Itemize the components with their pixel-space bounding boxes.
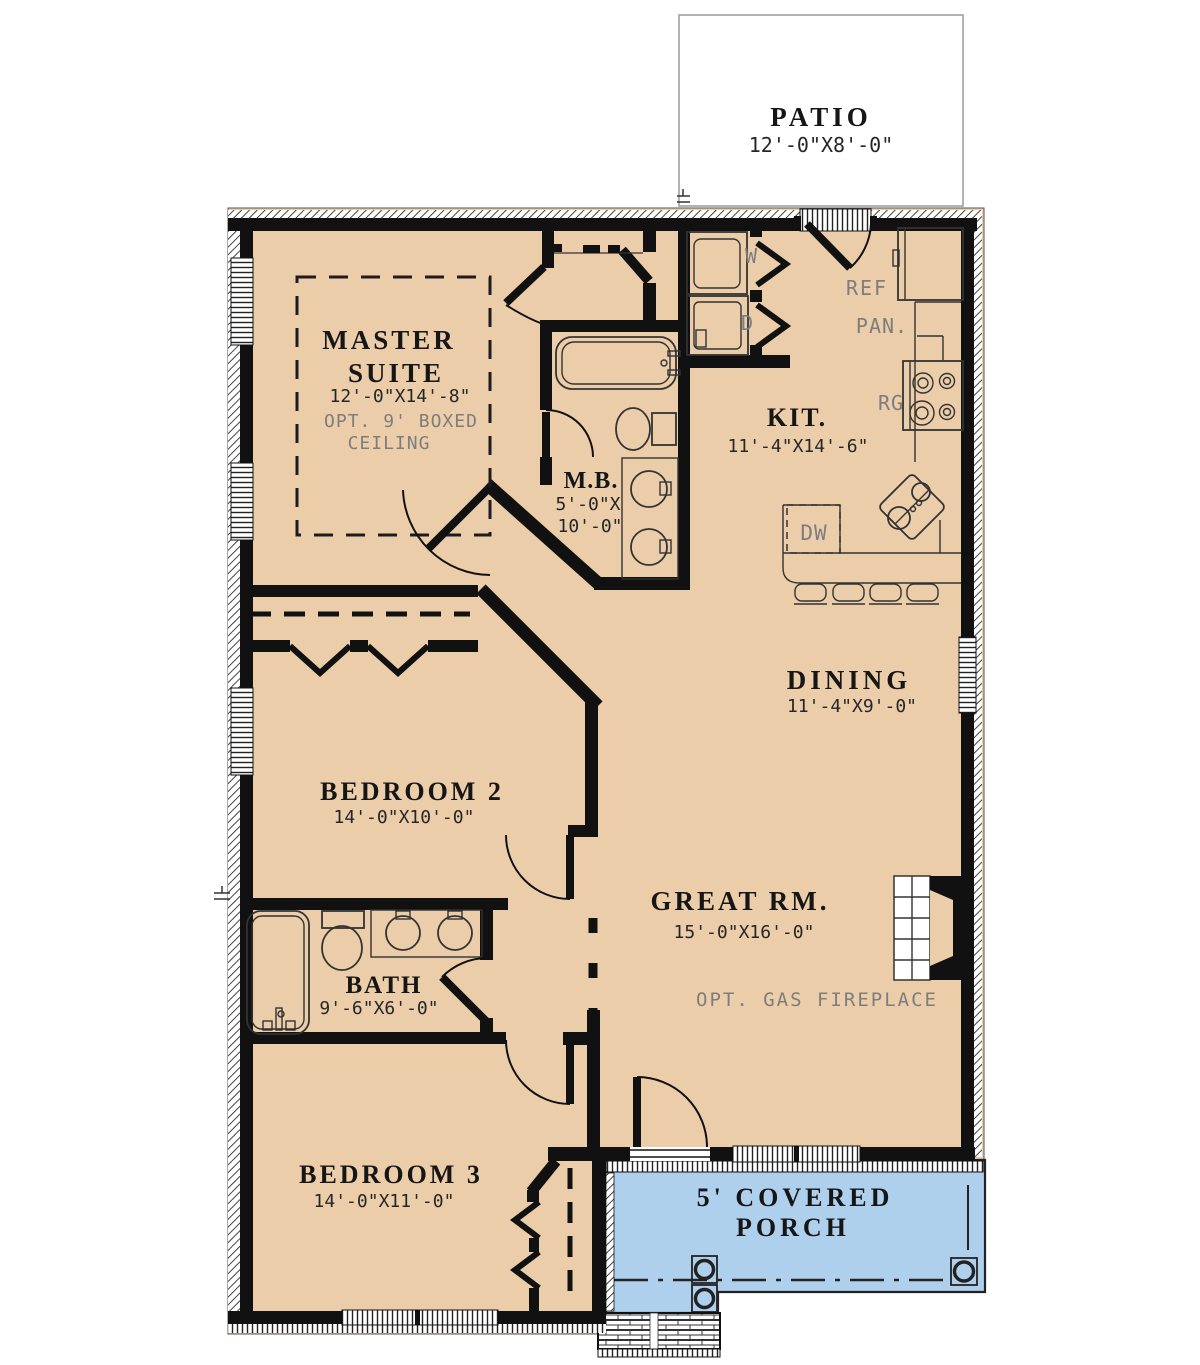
master-bath-dims-1: 5'-0"X — [555, 494, 620, 515]
porch-label-line1: 5' COVERED — [697, 1183, 894, 1212]
range-label: RG — [878, 391, 904, 415]
bath-label: BATH — [346, 972, 423, 999]
porch-edge-band — [606, 1161, 983, 1172]
porch-steps — [598, 1313, 720, 1357]
patio-label: PATIO — [770, 102, 872, 132]
window — [959, 637, 976, 713]
dryer-label: D — [741, 311, 753, 335]
porch-label-line2: PORCH — [736, 1213, 850, 1242]
window — [231, 463, 253, 540]
washer-label: W — [745, 244, 758, 268]
floor-plan-svg: PATIO 12'-0"X8'-0" 5' COVERED PORCH — [0, 0, 1200, 1365]
porch-side-band — [606, 1173, 614, 1311]
bedroom3-dims: 14'-0"X11'-0" — [314, 1191, 455, 1212]
refrigerator-label: REF — [846, 276, 888, 300]
floor-plan-page: PATIO 12'-0"X8'-0" 5' COVERED PORCH — [0, 0, 1200, 1365]
pantry-label: PAN. — [856, 314, 908, 338]
dining-label: DINING — [787, 665, 912, 695]
dining-dims: 11'-4"X9'-0" — [787, 696, 917, 717]
bath-dims: 9'-6"X6'-0" — [319, 998, 438, 1019]
master-suite-note-2: CEILING — [348, 433, 431, 454]
master-suite-label-1: MASTER — [322, 325, 456, 355]
master-bath-label: M.B. — [564, 468, 619, 494]
kitchen-label: KIT. — [767, 403, 827, 432]
fireplace-note: OPT. GAS FIREPLACE — [696, 989, 938, 1011]
patio-dims: 12'-0"X8'-0" — [749, 133, 894, 157]
master-bath-dims-2: 10'-0" — [557, 516, 622, 537]
covered-porch: 5' COVERED PORCH — [598, 1160, 985, 1357]
master-suite-dims: 12'-0"X14'-8" — [330, 386, 471, 407]
bedroom2-label: BEDROOM 2 — [320, 777, 504, 806]
great-room-label: GREAT RM. — [650, 886, 829, 916]
fireplace — [894, 876, 964, 980]
window — [231, 688, 253, 775]
great-room-dims: 15'-0"X16'-0" — [674, 922, 815, 943]
bedroom2-dims: 14'-0"X10'-0" — [334, 807, 475, 828]
kitchen-dims: 11'-4"X14'-6" — [728, 436, 869, 457]
master-suite-note-1: OPT. 9' BOXED — [324, 411, 478, 432]
window — [231, 258, 253, 345]
front-door-opening — [630, 1147, 710, 1161]
patio: PATIO 12'-0"X8'-0" — [679, 15, 963, 206]
master-suite-label-2: SUITE — [348, 358, 444, 388]
dishwasher-label: DW — [800, 521, 827, 545]
bedroom3-label: BEDROOM 3 — [299, 1160, 483, 1189]
